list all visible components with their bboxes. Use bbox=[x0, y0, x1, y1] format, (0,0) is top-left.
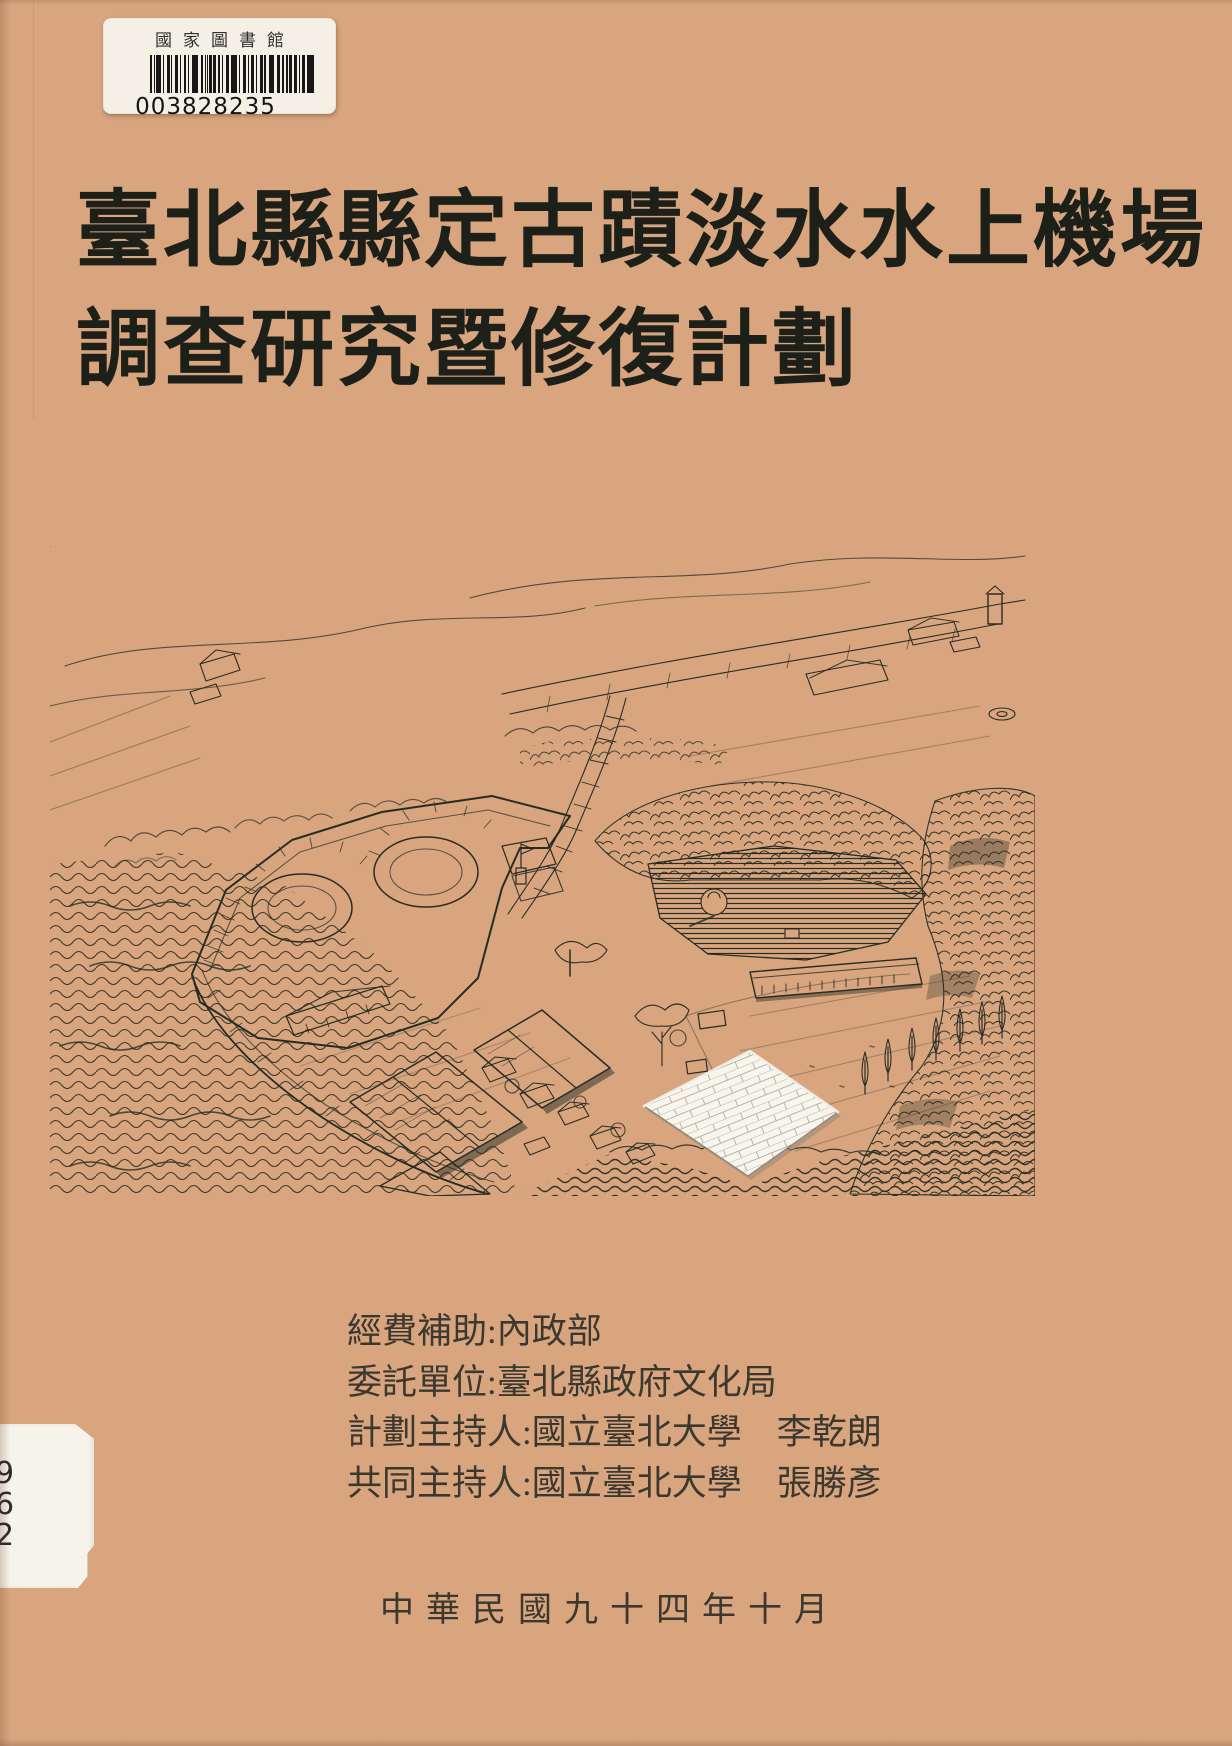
credit-line-co-principal: 共同主持人:國立臺北大學 張勝彥 bbox=[347, 1459, 882, 1510]
cover-crease-line bbox=[33, 0, 34, 420]
barcode-icon bbox=[150, 55, 316, 93]
barcode-number: 003828235 bbox=[89, 94, 322, 120]
cover-bottom-edge bbox=[0, 1738, 1232, 1746]
publication-date: 中華民國九十四年十月 bbox=[380, 1582, 840, 1631]
call-number-label: 9 6 2 bbox=[0, 1424, 94, 1588]
hills-sketch bbox=[50, 556, 1025, 810]
credits-block: 經費補助:內政部 委託單位:臺北縣政府文化局 計劃主持人:國立臺北大學 李乾朗 … bbox=[347, 1307, 882, 1509]
book-cover: 國家圖書館 003828235 臺北縣縣定古蹟淡水水上機場 調查研究暨修復計劃 bbox=[0, 0, 1232, 1746]
pond bbox=[648, 846, 926, 960]
seaplane-slipway-ramp bbox=[644, 1051, 841, 1180]
cover-left-edge bbox=[0, 0, 10, 1746]
site-aerial-illustration bbox=[50, 546, 1035, 1196]
credit-line-funding: 經費補助:內政部 bbox=[347, 1307, 882, 1358]
credit-line-principal: 計劃主持人:國立臺北大學 李乾朗 bbox=[347, 1408, 882, 1459]
library-name: 國家圖書館 bbox=[103, 26, 336, 51]
title-line-1: 臺北縣縣定古蹟淡水水上機場 bbox=[76, 172, 1216, 291]
book-title: 臺北縣縣定古蹟淡水水上機場 調查研究暨修復計劃 bbox=[76, 172, 1216, 410]
library-barcode-label: 國家圖書館 003828235 bbox=[103, 18, 336, 114]
cover-top-edge bbox=[0, 0, 1232, 5]
credit-line-commissioner: 委託單位:臺北縣政府文化局 bbox=[347, 1358, 882, 1409]
upper-field bbox=[190, 637, 1015, 786]
title-line-2: 調查研究暨修復計劃 bbox=[76, 291, 1216, 410]
